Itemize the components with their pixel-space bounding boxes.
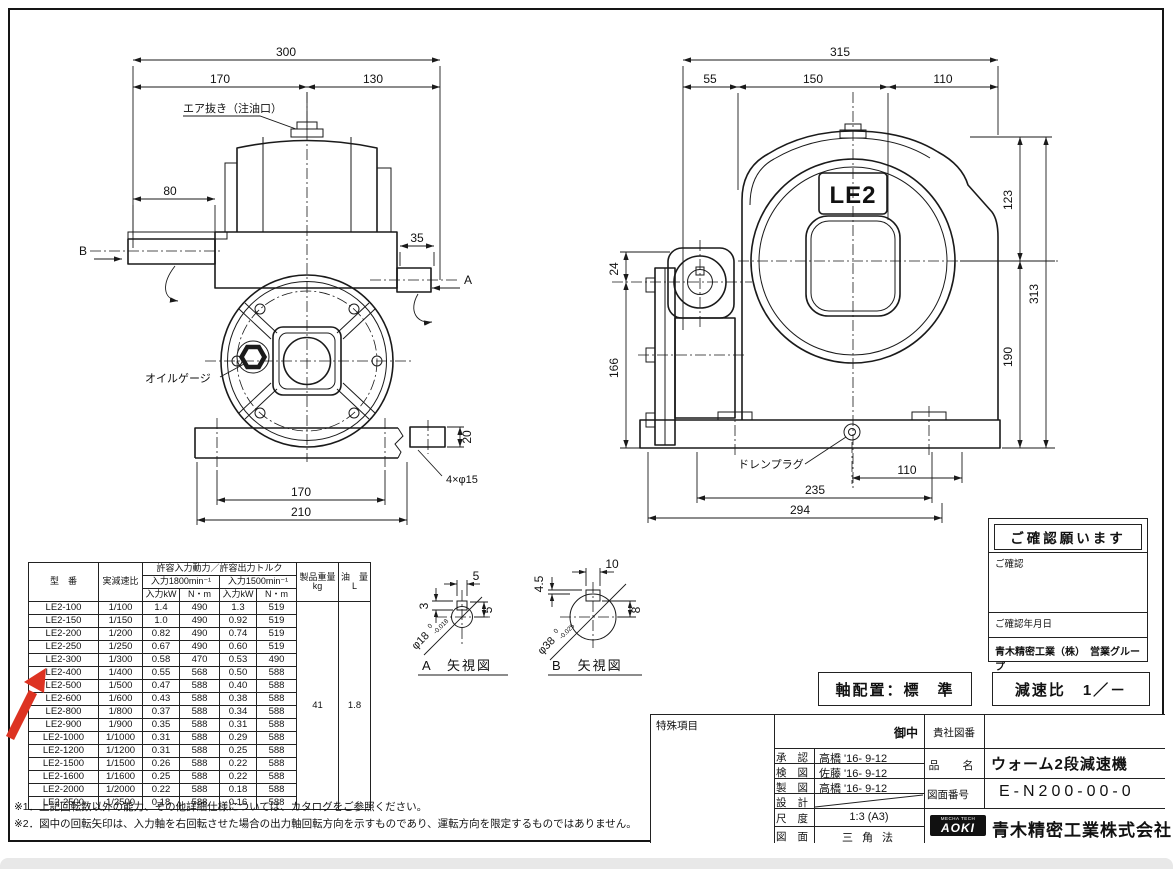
svg-text:3: 3: [417, 602, 431, 609]
svg-text:55: 55: [703, 72, 717, 86]
spec-cell: 588: [180, 732, 220, 745]
spec-cell: 1/150: [99, 615, 143, 628]
spec-cell: 470: [180, 654, 220, 667]
svg-text:4.5: 4.5: [532, 575, 546, 592]
company-name: 青木精密工業株式会社: [992, 816, 1172, 841]
spec-cell: 0.25: [143, 771, 180, 784]
svg-text:294: 294: [790, 503, 810, 517]
col-header-model: 型 番: [29, 563, 99, 602]
weight-cell: 41: [297, 602, 339, 810]
svg-text:300: 300: [276, 45, 296, 59]
svg-text:80: 80: [163, 184, 177, 198]
spec-cell: 0.40: [220, 680, 257, 693]
side-centerlines: [612, 92, 1060, 488]
check-label: 検 図: [774, 765, 814, 780]
col-header-oil: 油 量L: [339, 563, 371, 602]
spec-cell: 519: [257, 641, 297, 654]
spec-cell: 588: [180, 719, 220, 732]
col-header-nm: N・m: [257, 589, 297, 602]
spec-cell: 588: [257, 680, 297, 693]
spec-cell: LE2-1600: [29, 771, 99, 784]
spec-cell: 588: [257, 693, 297, 706]
drawing-no: E-N200-00-0: [999, 783, 1135, 801]
spec-cell: 0.25: [220, 745, 257, 758]
spec-cell: 588: [257, 771, 297, 784]
title-block: 特殊項目 御中 貴社図番 承 認 高橋 '16- 9-12 検 図 佐藤 '16…: [650, 714, 1165, 843]
approval-label: 承 認: [774, 750, 814, 765]
spec-cell: 0.60: [220, 641, 257, 654]
spec-cell: 0.31: [143, 732, 180, 745]
spec-cell: 0.22: [220, 758, 257, 771]
spec-cell: 588: [257, 758, 297, 771]
side-view-drawing: LE2 315: [600, 30, 1173, 535]
shaft-detail-views: φ18 0 -0.018 5 3 5 A 矢視図: [380, 540, 680, 690]
side-outline: LE2: [640, 124, 1000, 448]
spec-cell: 0.55: [143, 667, 180, 680]
spec-cell: 1.0: [143, 615, 180, 628]
spec-cell: 1/1000: [99, 732, 143, 745]
svg-text:315: 315: [830, 45, 850, 59]
confirm-section-label: ご確認: [995, 556, 1024, 570]
spec-cell: LE2-100: [29, 602, 99, 615]
spec-cell: 1/500: [99, 680, 143, 693]
detail-a-title: A 矢視図: [422, 658, 492, 673]
spec-cell: 588: [180, 680, 220, 693]
spec-cell: LE2-2000: [29, 784, 99, 797]
note-2: ※2．図中の回転矢印は、入力軸を右回転させた場合の出力軸回転方向を示すものであり…: [14, 816, 637, 831]
spec-cell: 1/900: [99, 719, 143, 732]
front-outline: [128, 122, 445, 458]
spec-cell: 588: [180, 758, 220, 771]
spec-cell: 490: [180, 615, 220, 628]
spec-cell: 1/250: [99, 641, 143, 654]
spec-cell: 588: [257, 667, 297, 680]
svg-text:210: 210: [291, 505, 311, 519]
spec-cell: 519: [257, 615, 297, 628]
recipient-label: 御中: [774, 724, 918, 741]
col-header-ratio: 実減速比: [99, 563, 143, 602]
oil-cell: 1.8: [339, 602, 371, 810]
aoki-logo: MECHA TECH AOKI: [930, 815, 986, 836]
oil-gauge-label: オイルゲージ: [145, 372, 211, 385]
spec-cell: 0.82: [143, 628, 180, 641]
spec-cell: 0.92: [220, 615, 257, 628]
product-name-label: 品 名: [924, 757, 984, 773]
svg-text:130: 130: [363, 72, 383, 86]
drafting-value: 高橋 '16- 9-12: [819, 780, 887, 796]
window-bottom-bar: [0, 858, 1173, 869]
spec-cell: LE2-1200: [29, 745, 99, 758]
drawing-page: 300 170 130 エア抜き（注油口） 80 35 B A オイルゲージ: [0, 0, 1173, 869]
spec-cell: 0.38: [220, 693, 257, 706]
spec-cell: 0.53: [220, 654, 257, 667]
note-1: ※1．上記回転数以外の能力、その他詳細仕様については、カタログをご参照ください。: [14, 799, 427, 814]
base-holes-note: 4×φ15: [446, 474, 478, 486]
col-header-kw: 入力kW: [220, 589, 257, 602]
col-header-1500: 入力1500min⁻¹: [220, 576, 297, 589]
confirmation-title: ご確認願います: [994, 524, 1142, 550]
product-name: ウォーム2段減速機: [991, 753, 1128, 774]
spec-cell: 0.31: [220, 719, 257, 732]
red-annotation-arrow: [2, 650, 57, 745]
spec-cell: 588: [257, 732, 297, 745]
scale-label: 尺 度: [774, 811, 814, 826]
spec-cell: 0.34: [220, 706, 257, 719]
svg-text:150: 150: [803, 72, 823, 86]
front-dimensions: 300 170 130 エア抜き（注油口） 80 35 B A オイルゲージ: [79, 45, 478, 525]
col-header-weight: 製品重量kg: [297, 563, 339, 602]
spec-cell: 1/1600: [99, 771, 143, 784]
view-b-label: B: [79, 244, 87, 258]
reduction-ratio-box: 減速比 1／－: [992, 672, 1150, 706]
spec-cell: 519: [257, 628, 297, 641]
svg-text:110: 110: [933, 72, 952, 86]
svg-text:170: 170: [291, 485, 311, 499]
detail-view-b: φ38 0 -0.025 10 4.5 8 B 矢視図: [532, 557, 643, 675]
spec-cell: 490: [180, 628, 220, 641]
shaft-config-box: 軸配置：標 準: [818, 672, 972, 706]
svg-text:35: 35: [410, 231, 424, 245]
spec-cell: 1/1200: [99, 745, 143, 758]
confirm-date-label: ご確認年月日: [995, 616, 1052, 630]
svg-text:123: 123: [1001, 190, 1015, 210]
svg-text:24: 24: [607, 262, 621, 276]
svg-text:313: 313: [1027, 284, 1041, 304]
spec-cell: 588: [180, 706, 220, 719]
special-items-label: 特殊項目: [656, 718, 698, 733]
svg-text:166: 166: [607, 358, 621, 378]
spec-cell: 1/200: [99, 628, 143, 641]
air-vent-label: エア抜き（注油口）: [183, 101, 282, 115]
spec-cell: 0.26: [143, 758, 180, 771]
col-header-group: 許容入力動力／許容出力トルク: [143, 563, 297, 576]
detail-b-title: B 矢視図: [552, 658, 623, 673]
blank-cell-diagonal: [815, 794, 923, 808]
spec-cell: 588: [257, 719, 297, 732]
projection-value: 三 角 法: [814, 829, 924, 845]
svg-text:20: 20: [460, 430, 474, 444]
drain-plug-label: ドレンプラグ: [738, 457, 804, 471]
spec-table: 型 番 実減速比 許容入力動力／許容出力トルク 製品重量kg 油 量L 入力18…: [28, 562, 371, 810]
approval-value: 高橋 '16- 9-12: [819, 750, 887, 766]
spec-cell: LE2-1500: [29, 758, 99, 771]
spec-cell: 0.37: [143, 706, 180, 719]
svg-text:10: 10: [605, 557, 619, 571]
check-value: 佐藤 '16- 9-12: [819, 765, 887, 781]
spec-cell: 1.4: [143, 602, 180, 615]
front-centerlines: [90, 92, 460, 468]
table-row: LE2-1001/1001.44901.3519411.8: [29, 602, 371, 615]
le2-logo: LE2: [829, 182, 876, 209]
spec-cell: 0.67: [143, 641, 180, 654]
projection-label: 図 面: [774, 829, 814, 844]
spec-cell: 1/1500: [99, 758, 143, 771]
spec-cell: 519: [257, 602, 297, 615]
col-header-1800: 入力1800min⁻¹: [143, 576, 220, 589]
scale-value: 1:3 (A3): [814, 811, 924, 823]
spec-cell: 0.29: [220, 732, 257, 745]
spec-cell: 0.58: [143, 654, 180, 667]
spec-cell: 0.47: [143, 680, 180, 693]
col-header-nm: N・m: [180, 589, 220, 602]
spec-cell: 1/2000: [99, 784, 143, 797]
spec-cell: 1/800: [99, 706, 143, 719]
spec-cell: 0.43: [143, 693, 180, 706]
svg-text:170: 170: [210, 72, 230, 86]
view-a-label: A: [464, 273, 472, 287]
spec-cell: 0.74: [220, 628, 257, 641]
drawing-no-label: 図面番号: [927, 787, 969, 802]
spec-cell: 0.50: [220, 667, 257, 680]
svg-text:8: 8: [629, 606, 643, 613]
spec-cell: 490: [180, 602, 220, 615]
spec-cell: 0.31: [143, 745, 180, 758]
svg-text:190: 190: [1001, 347, 1015, 367]
spec-cell: 1/600: [99, 693, 143, 706]
spec-cell: LE2-150: [29, 615, 99, 628]
design-label: 設 計: [774, 795, 814, 810]
spec-cell: 490: [180, 641, 220, 654]
shaft-a-diameter: φ18 0 -0.018: [406, 609, 450, 653]
spec-cell: 0.18: [220, 784, 257, 797]
detail-view-a: φ18 0 -0.018 5 3 5 A 矢視図: [406, 569, 508, 675]
spec-cell: 588: [257, 784, 297, 797]
spec-table-body: LE2-1001/1001.44901.3519411.8LE2-1501/15…: [29, 602, 371, 810]
spec-cell: 1/300: [99, 654, 143, 667]
spec-cell: 588: [180, 784, 220, 797]
spec-cell: LE2-200: [29, 628, 99, 641]
confirmation-box: ご確認願います ご確認 ご確認年月日 青木精密工業（株） 営業グループ: [988, 518, 1148, 662]
spec-cell: 0.22: [143, 784, 180, 797]
spec-cell: 0.35: [143, 719, 180, 732]
spec-cell: 588: [180, 693, 220, 706]
spec-cell: 1/400: [99, 667, 143, 680]
confirm-footer: 青木精密工業（株） 営業グループ: [995, 643, 1147, 673]
spec-cell: 588: [257, 745, 297, 758]
drafting-label: 製 図: [774, 780, 814, 795]
spec-cell: 1.3: [220, 602, 257, 615]
svg-text:5: 5: [481, 606, 495, 613]
spec-cell: 1/100: [99, 602, 143, 615]
spec-cell: 0.22: [220, 771, 257, 784]
spec-cell: 588: [180, 745, 220, 758]
svg-text:235: 235: [805, 483, 825, 497]
svg-text:110: 110: [897, 463, 916, 477]
spec-cell: 568: [180, 667, 220, 680]
front-view-drawing: 300 170 130 エア抜き（注油口） 80 35 B A オイルゲージ: [20, 30, 580, 540]
spec-cell: 588: [257, 706, 297, 719]
spec-cell: 588: [180, 771, 220, 784]
spec-cell: 490: [257, 654, 297, 667]
svg-text:5: 5: [473, 569, 480, 583]
company-dwg-no-label: 貴社図番: [924, 725, 984, 740]
col-header-kw: 入力kW: [143, 589, 180, 602]
